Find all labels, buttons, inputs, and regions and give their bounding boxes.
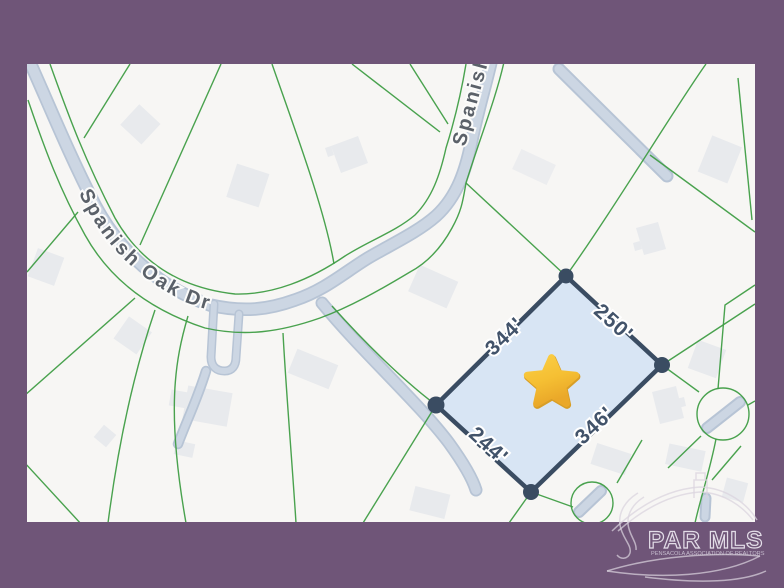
svg-text:PAR MLS: PAR MLS <box>648 527 763 554</box>
svg-text:PENSACOLA ASSOCIATION OF REALT: PENSACOLA ASSOCIATION OF REALTORS <box>651 551 765 557</box>
